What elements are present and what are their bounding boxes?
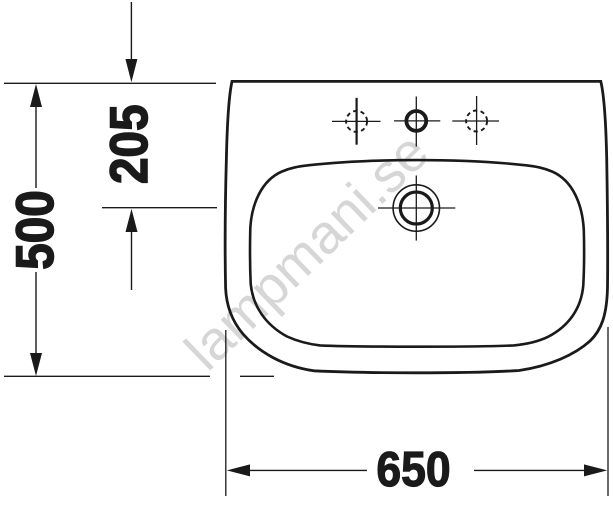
svg-text:500: 500 [4,190,64,270]
svg-text:205: 205 [99,104,159,184]
svg-text:650: 650 [376,441,450,497]
